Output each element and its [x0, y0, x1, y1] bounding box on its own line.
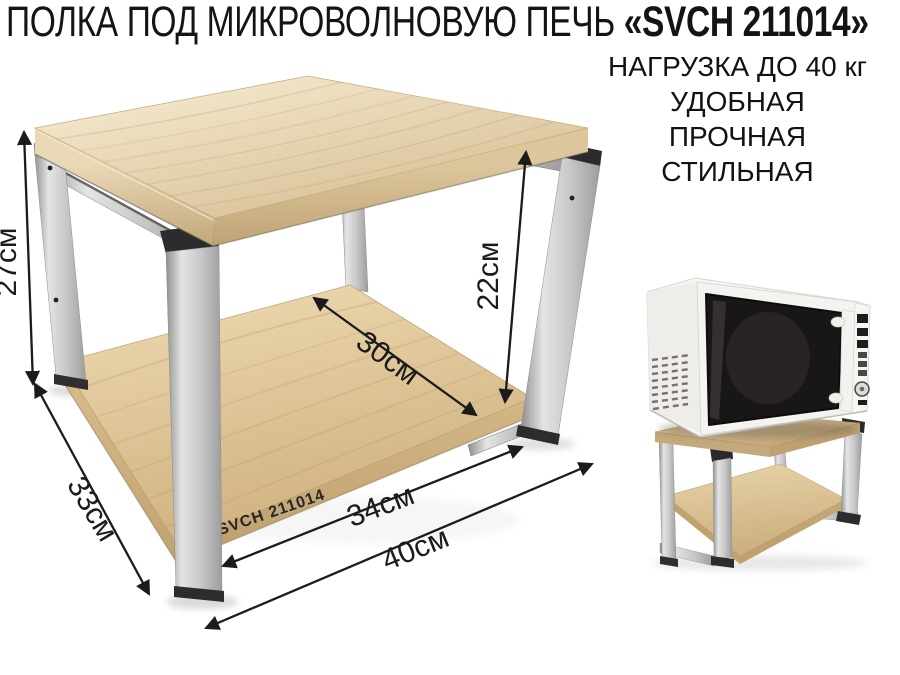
- door-latch-bottom: [829, 393, 843, 403]
- product-image: ПОЛКА ПОД МИКРОВОЛНОВУЮ ПЕЧЬ «SVCH 21101…: [0, 0, 900, 675]
- label-overall-height: 27см: [0, 228, 23, 297]
- window-glow: [726, 312, 810, 404]
- inset-leg-front-center: [710, 445, 734, 568]
- microwave-scene: [647, 278, 870, 571]
- main-shelf: SVCH 211014: [0, 76, 602, 628]
- label-overall-depth: 33см: [60, 471, 124, 547]
- microwave: [647, 278, 870, 438]
- panel-display: [857, 314, 868, 323]
- door-latch-top: [831, 317, 845, 327]
- leg-right: [516, 142, 602, 445]
- label-clearance-height: 22см: [472, 242, 505, 311]
- top-board: [35, 76, 588, 246]
- dimension-clearance-height: [505, 152, 526, 402]
- product-illustration: SVCH 211014: [0, 0, 900, 675]
- dimension-overall-height: [24, 132, 33, 384]
- control-panel: [852, 303, 870, 413]
